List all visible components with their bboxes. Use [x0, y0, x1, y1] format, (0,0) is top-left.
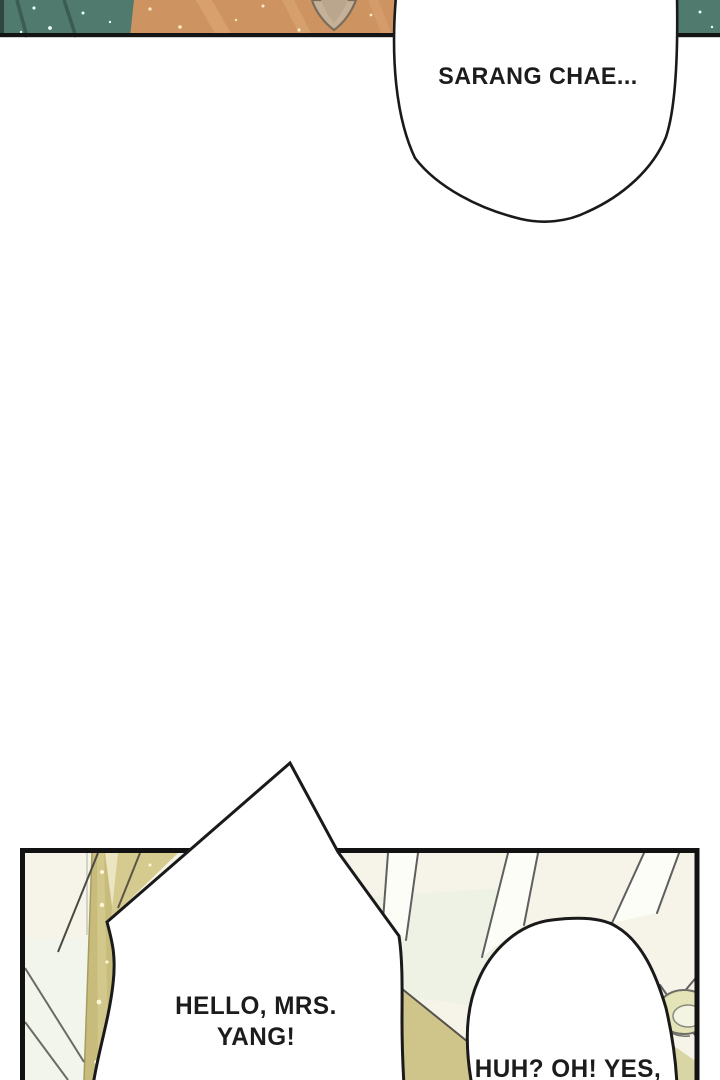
dialogue-sarang: SARANG CHAE...	[431, 63, 644, 91]
dialogue-huh: HUH? OH! YES,	[461, 1055, 674, 1080]
webtoon-page: SARANG CHAE... HELLO, MRS. YANG! HUH? OH…	[0, 0, 720, 1080]
top-panel-art	[0, 0, 720, 240]
dialogue-hello-line2: YANG!	[217, 1023, 295, 1051]
wall-shadow-edge	[0, 0, 4, 37]
dialogue-hello-line1: HELLO, MRS.	[175, 992, 337, 1020]
speech-bubble-sarang	[394, 0, 677, 222]
dialogue-hello: HELLO, MRS. YANG!	[149, 991, 362, 1053]
